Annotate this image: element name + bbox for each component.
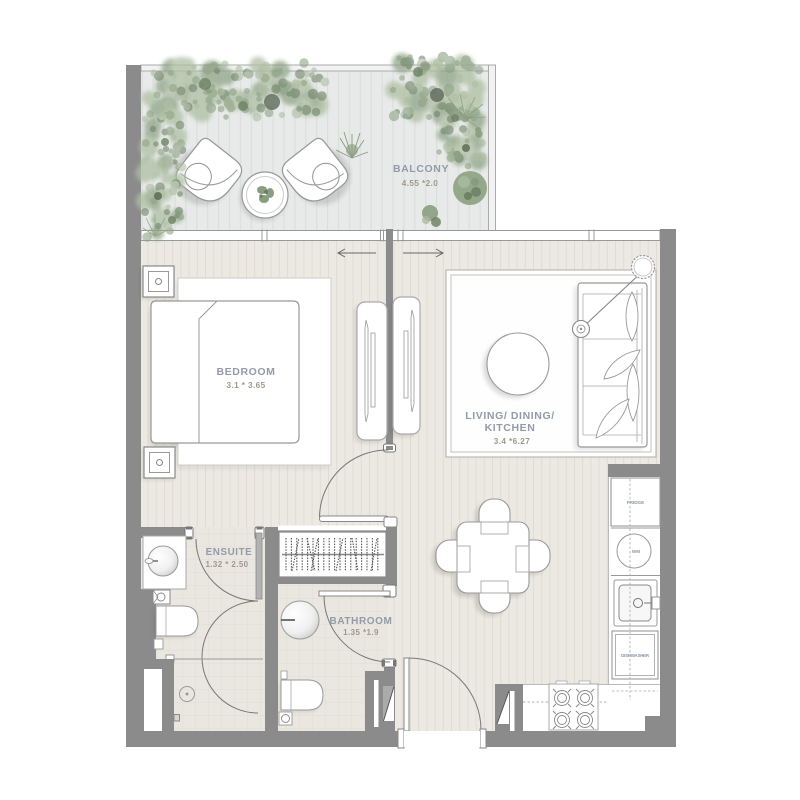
svg-text:BATHROOM: BATHROOM [330,616,393,627]
svg-text:1.35 *1.9: 1.35 *1.9 [343,628,379,637]
svg-text:KITCHEN: KITCHEN [485,422,536,434]
svg-text:ENSUITE: ENSUITE [206,547,253,558]
svg-text:BALCONY: BALCONY [393,163,449,175]
svg-text:BEDROOM: BEDROOM [216,366,275,378]
svg-text:FRIDGE: FRIDGE [627,500,644,505]
svg-text:LIVING/ DINING/: LIVING/ DINING/ [465,410,555,422]
svg-text:WM: WM [632,549,640,554]
svg-text:3.4 *6.27: 3.4 *6.27 [494,437,530,446]
svg-text:3.1 * 3.65: 3.1 * 3.65 [226,381,265,390]
svg-text:1.32 * 2.50: 1.32 * 2.50 [205,560,248,569]
svg-text:DISHWASHER: DISHWASHER [621,653,650,658]
svg-text:4.55 *2.0: 4.55 *2.0 [402,179,438,188]
